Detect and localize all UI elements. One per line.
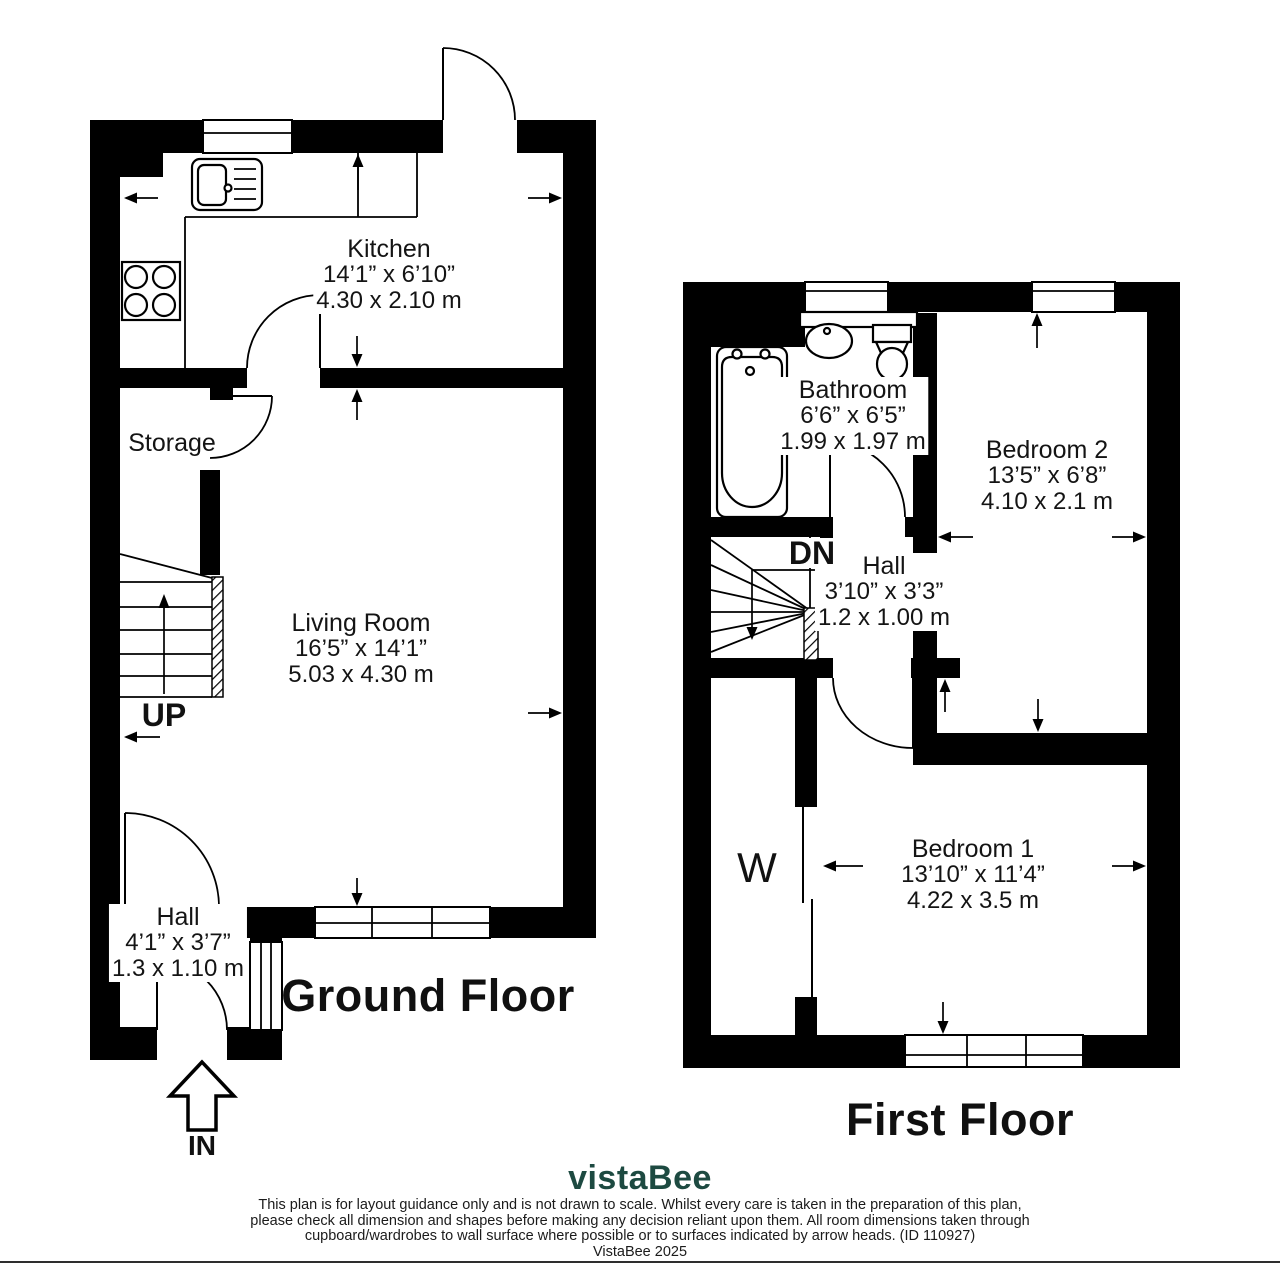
living-room-metric-dimensions: 5.03 x 4.30 m — [288, 662, 433, 688]
vistabee-logo: vistaBee — [0, 1160, 1280, 1196]
ground-floor-title: Ground Floor — [281, 970, 574, 1022]
floorplan-page: Kitchen 14’1” x 6’10” 4.30 x 2.10 m Stor… — [0, 0, 1280, 1266]
hall-living-door — [125, 813, 219, 907]
stairs-down-label: DN — [787, 538, 837, 568]
disclaimer-line-1: This plan is for layout guidance only an… — [0, 1198, 1280, 1214]
living-room-window — [315, 907, 490, 938]
sink-fixture — [192, 159, 262, 210]
toilet-fixture — [873, 325, 911, 380]
ground-hall-label: Hall 4’1” x 3’7” 1.3 x 1.10 m — [109, 904, 247, 982]
first-hall-metric-dimensions: 1.2 x 1.00 m — [818, 605, 950, 631]
kitchen-label: Kitchen 14’1” x 6’10” 4.30 x 2.10 m — [313, 236, 464, 314]
bedroom-1-label: Bedroom 1 13’10” x 11’4” 4.22 x 3.5 m — [898, 836, 1048, 914]
stair-stringer-hatch — [212, 577, 223, 697]
basin-fixture — [806, 324, 852, 358]
bathroom-label: Bathroom 6’6” x 6’5” 1.99 x 1.97 m — [777, 377, 928, 455]
storage-door — [210, 396, 272, 458]
bathroom-metric-dimensions: 1.99 x 1.97 m — [780, 429, 925, 455]
kitchen-name: Kitchen — [316, 236, 461, 262]
bathroom-name: Bathroom — [780, 377, 925, 403]
wardrobe-sliding-door — [803, 807, 812, 997]
first-floor-title: First Floor — [846, 1094, 1074, 1146]
bedroom-2-window — [1032, 282, 1115, 312]
wardrobe-label: W — [737, 848, 777, 888]
living-room-label: Living Room 16’5” x 14’1” 5.03 x 4.30 m — [285, 610, 436, 688]
ground-hall-name: Hall — [112, 904, 244, 930]
entrance-arrow-icon — [170, 1062, 234, 1130]
bedroom-1-window — [905, 1035, 1083, 1067]
storage-label: Storage — [125, 430, 219, 456]
bottom-border-line — [0, 1261, 1280, 1263]
hall-side-window — [250, 942, 282, 1030]
bedroom-2-imperial-dimensions: 13’5” x 6’8” — [981, 463, 1113, 489]
disclaimer-text: This plan is for layout guidance only an… — [0, 1198, 1280, 1260]
kitchen-living-door — [247, 295, 320, 368]
bedroom-2-metric-dimensions: 4.10 x 2.1 m — [981, 489, 1113, 515]
bedroom-1-imperial-dimensions: 13’10” x 11’4” — [901, 862, 1045, 888]
kitchen-metric-dimensions: 4.30 x 2.10 m — [316, 288, 461, 314]
first-hall-imperial-dimensions: 3’10” x 3’3” — [818, 579, 950, 605]
ground-hall-imperial-dimensions: 4’1” x 3’7” — [112, 930, 244, 956]
kitchen-imperial-dimensions: 14’1” x 6’10” — [316, 262, 461, 288]
ground-hall-metric-dimensions: 1.3 x 1.10 m — [112, 956, 244, 982]
bathroom-window — [805, 282, 888, 312]
disclaimer-line-2: please check all dimension and shapes be… — [0, 1214, 1280, 1230]
kitchen-exterior-door — [443, 48, 515, 120]
living-room-name: Living Room — [288, 610, 433, 636]
stairs-up-label: UP — [140, 700, 188, 730]
bedroom-1-metric-dimensions: 4.22 x 3.5 m — [901, 888, 1045, 914]
kitchen-window — [203, 120, 292, 153]
copyright-text: VistaBee 2025 — [0, 1245, 1280, 1261]
bathroom-imperial-dimensions: 6’6” x 6’5” — [780, 403, 925, 429]
storage-name: Storage — [128, 430, 216, 456]
first-hall-name: Hall — [818, 553, 950, 579]
footer: vistaBee This plan is for layout guidanc… — [0, 1160, 1280, 1260]
stairs-up — [120, 554, 223, 697]
floorplan-drawing — [0, 0, 1280, 1266]
bedroom-2-name: Bedroom 2 — [981, 437, 1113, 463]
disclaimer-line-3: cupboard/wardrobes to wall surface where… — [0, 1229, 1280, 1245]
hob-fixture — [122, 262, 180, 320]
bedroom-2-label: Bedroom 2 13’5” x 6’8” 4.10 x 2.1 m — [978, 437, 1116, 515]
bedroom-1-door — [833, 678, 913, 748]
living-room-imperial-dimensions: 16’5” x 14’1” — [288, 636, 433, 662]
bedroom-1-name: Bedroom 1 — [901, 836, 1045, 862]
first-floor-plan — [683, 282, 1180, 1068]
entrance-label: IN — [188, 1132, 216, 1160]
